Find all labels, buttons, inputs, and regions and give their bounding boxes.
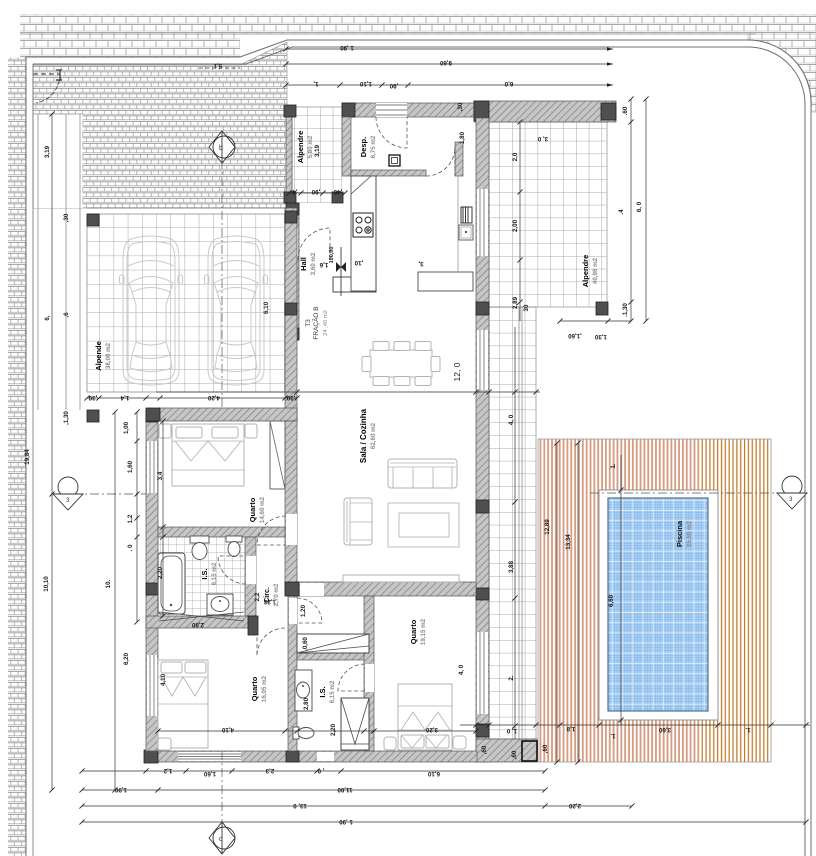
svg-text:13, 0: 13, 0	[293, 802, 307, 809]
svg-text:1,20: 1,20	[300, 604, 307, 617]
svg-text:,1,60: ,1,60	[568, 332, 582, 339]
svg-text:1, 0: 1, 0	[506, 727, 517, 734]
svg-text:6,60: 6,60	[608, 594, 615, 607]
svg-text:,4: ,4	[292, 188, 298, 195]
svg-text:Alpende: Alpende	[94, 341, 103, 371]
svg-text:4,10: 4,10	[221, 726, 234, 733]
svg-text:3,20: 3,20	[425, 726, 438, 733]
svg-text:2,20: 2,20	[330, 723, 337, 736]
svg-text:Alpendre: Alpendre	[581, 255, 590, 288]
svg-text:Quarto: Quarto	[250, 676, 259, 701]
svg-text:,60: ,60	[511, 750, 518, 759]
svg-text:3,4: 3,4	[157, 471, 164, 480]
svg-text:6,75 m2: 6,75 m2	[370, 135, 377, 158]
svg-text:3, 0: 3, 0	[537, 135, 548, 142]
svg-text:10.: 10.	[105, 579, 112, 588]
svg-text:9,60: 9,60	[439, 59, 452, 66]
svg-text:Desp.: Desp.	[359, 137, 368, 157]
svg-text:5,1: 5,1	[213, 62, 222, 68]
svg-text:2,0: 2,0	[512, 152, 519, 161]
svg-text:6,15 m2: 6,15 m2	[211, 562, 218, 585]
svg-text:2,3: 2,3	[265, 767, 274, 774]
svg-text:12, 0: 12, 0	[452, 362, 462, 381]
svg-text:,90: ,90	[311, 188, 320, 195]
svg-text:,40: ,40	[333, 188, 342, 195]
svg-text:2,2: 2,2	[254, 592, 261, 601]
svg-text:25,80 m2: 25,80 m2	[686, 520, 693, 547]
svg-text:,60: ,60	[481, 745, 488, 754]
svg-text:1,8: 1,8	[566, 725, 575, 732]
svg-text:I.S.: I.S.	[318, 686, 327, 697]
svg-text:,30: ,30	[88, 394, 97, 401]
svg-text:12,89: 12,89	[544, 519, 551, 535]
svg-text:19,84: 19,84	[24, 449, 31, 465]
svg-text:.4: .4	[618, 209, 625, 215]
svg-text:16,05 m2: 16,05 m2	[261, 675, 268, 702]
svg-text:Circ.: Circ.	[264, 587, 271, 603]
svg-text:,90: ,90	[389, 82, 398, 89]
svg-text:,6: ,6	[63, 312, 70, 318]
svg-text:1,80: 1,80	[459, 131, 466, 144]
svg-text:2,20: 2,20	[568, 802, 581, 809]
svg-text:3,: 3,	[418, 260, 423, 267]
svg-text:4,10: 4,10	[160, 673, 167, 686]
svg-text:. 0: . 0	[127, 544, 134, 551]
svg-text:3,19: 3,19	[314, 144, 321, 157]
svg-text:1,2: 1,2	[127, 514, 134, 523]
svg-text:,30: ,30	[457, 102, 464, 111]
svg-text:I.S.: I.S.	[200, 568, 209, 579]
svg-text:Quarto: Quarto	[409, 619, 418, 644]
svg-text:62,60 m2: 62,60 m2	[370, 422, 377, 449]
svg-text:.60: .60	[622, 106, 629, 115]
svg-text:2,70 m2: 2,70 m2	[273, 583, 280, 606]
svg-text:1 ,90: 1 ,90	[339, 818, 353, 825]
svg-text:c: c	[219, 836, 223, 843]
svg-text:2.: 2.	[508, 675, 515, 680]
svg-text:Sala / Cozinha: Sala / Cozinha	[359, 408, 368, 463]
svg-text:1,60: 1,60	[127, 460, 134, 473]
svg-text:1,2: 1,2	[163, 767, 172, 774]
svg-text:30: 30	[523, 304, 530, 311]
svg-text:,60: ,60	[542, 744, 549, 753]
svg-text:5,80 m2: 5,80 m2	[307, 135, 314, 158]
svg-text:6,10: 6,10	[427, 770, 440, 777]
svg-text:1,30: 1,30	[594, 333, 607, 340]
svg-text:6,0: 6,0	[504, 80, 513, 87]
svg-text:1,90: 1,90	[114, 786, 127, 793]
svg-text:1,00: 1,00	[123, 421, 130, 434]
svg-text:FRAÇÃO B: FRAÇÃO B	[311, 306, 320, 339]
svg-text:3,60: 3,60	[658, 726, 671, 733]
svg-text:, 0: , 0	[317, 767, 324, 774]
svg-text:6,: 6,	[44, 315, 51, 320]
svg-text:1,: 1,	[313, 80, 318, 87]
svg-text:3,19: 3,19	[44, 145, 51, 158]
svg-text:Hall: Hall	[299, 257, 308, 271]
svg-text:1.: 1.	[610, 732, 615, 739]
svg-text:4, 0: 4, 0	[508, 414, 515, 425]
svg-text:10,10: 10,10	[43, 576, 50, 592]
svg-text:.1,30: .1,30	[622, 303, 629, 317]
svg-text:40,96 m2: 40,96 m2	[592, 257, 599, 284]
svg-text:6,20: 6,20	[123, 652, 130, 665]
svg-text:3,60 m2: 3,60 m2	[310, 252, 317, 275]
svg-text:1.: 1.	[610, 463, 617, 468]
svg-text:4,20: 4,20	[207, 394, 220, 401]
svg-text:6,15 m2: 6,15 m2	[329, 680, 336, 703]
svg-text:,30: ,30	[63, 213, 70, 222]
svg-text:19,15 m2: 19,15 m2	[420, 618, 427, 645]
svg-text:b: b	[219, 145, 223, 152]
svg-text:24 ,40 m2: 24 ,40 m2	[323, 310, 329, 336]
svg-text:,0,60: ,0,60	[302, 637, 309, 651]
svg-text:T3: T3	[305, 319, 312, 327]
svg-text:Quarto: Quarto	[248, 497, 257, 522]
svg-text:14,60 m2: 14,60 m2	[259, 496, 266, 523]
svg-text:2,89: 2,89	[512, 296, 519, 309]
svg-text:1,4: 1,4	[120, 394, 129, 401]
svg-text:,10: ,10	[354, 259, 363, 266]
svg-text:1,10: 1,10	[359, 80, 372, 87]
svg-text:2,20: 2,20	[157, 566, 164, 579]
svg-text:,30: ,30	[286, 394, 295, 401]
svg-text:1,6: 1,6	[319, 261, 328, 268]
svg-text:6,10: 6,10	[263, 301, 270, 314]
svg-text:4, 0: 4, 0	[458, 664, 465, 675]
svg-text:2,80: 2,80	[191, 621, 204, 628]
svg-text:1,60: 1,60	[203, 770, 216, 777]
svg-text:,1,30: ,1,30	[63, 411, 70, 425]
svg-text:13,34: 13,34	[565, 534, 572, 550]
svg-text:1 ,90: 1 ,90	[340, 44, 354, 51]
svg-text:3,88: 3,88	[508, 560, 515, 573]
svg-text:2,00: 2,00	[512, 219, 519, 232]
svg-text:2,80: 2,80	[303, 697, 310, 710]
svg-text:Piscina: Piscina	[675, 520, 684, 547]
svg-text:38,00 m2: 38,00 m2	[105, 342, 112, 369]
svg-text:100,00: 100,00	[329, 247, 335, 264]
svg-text:1.: 1.	[745, 726, 750, 733]
svg-text:Alpendre: Alpendre	[296, 131, 305, 164]
svg-text:11,80: 11,80	[337, 786, 353, 793]
svg-text:6, 0: 6, 0	[636, 201, 643, 212]
